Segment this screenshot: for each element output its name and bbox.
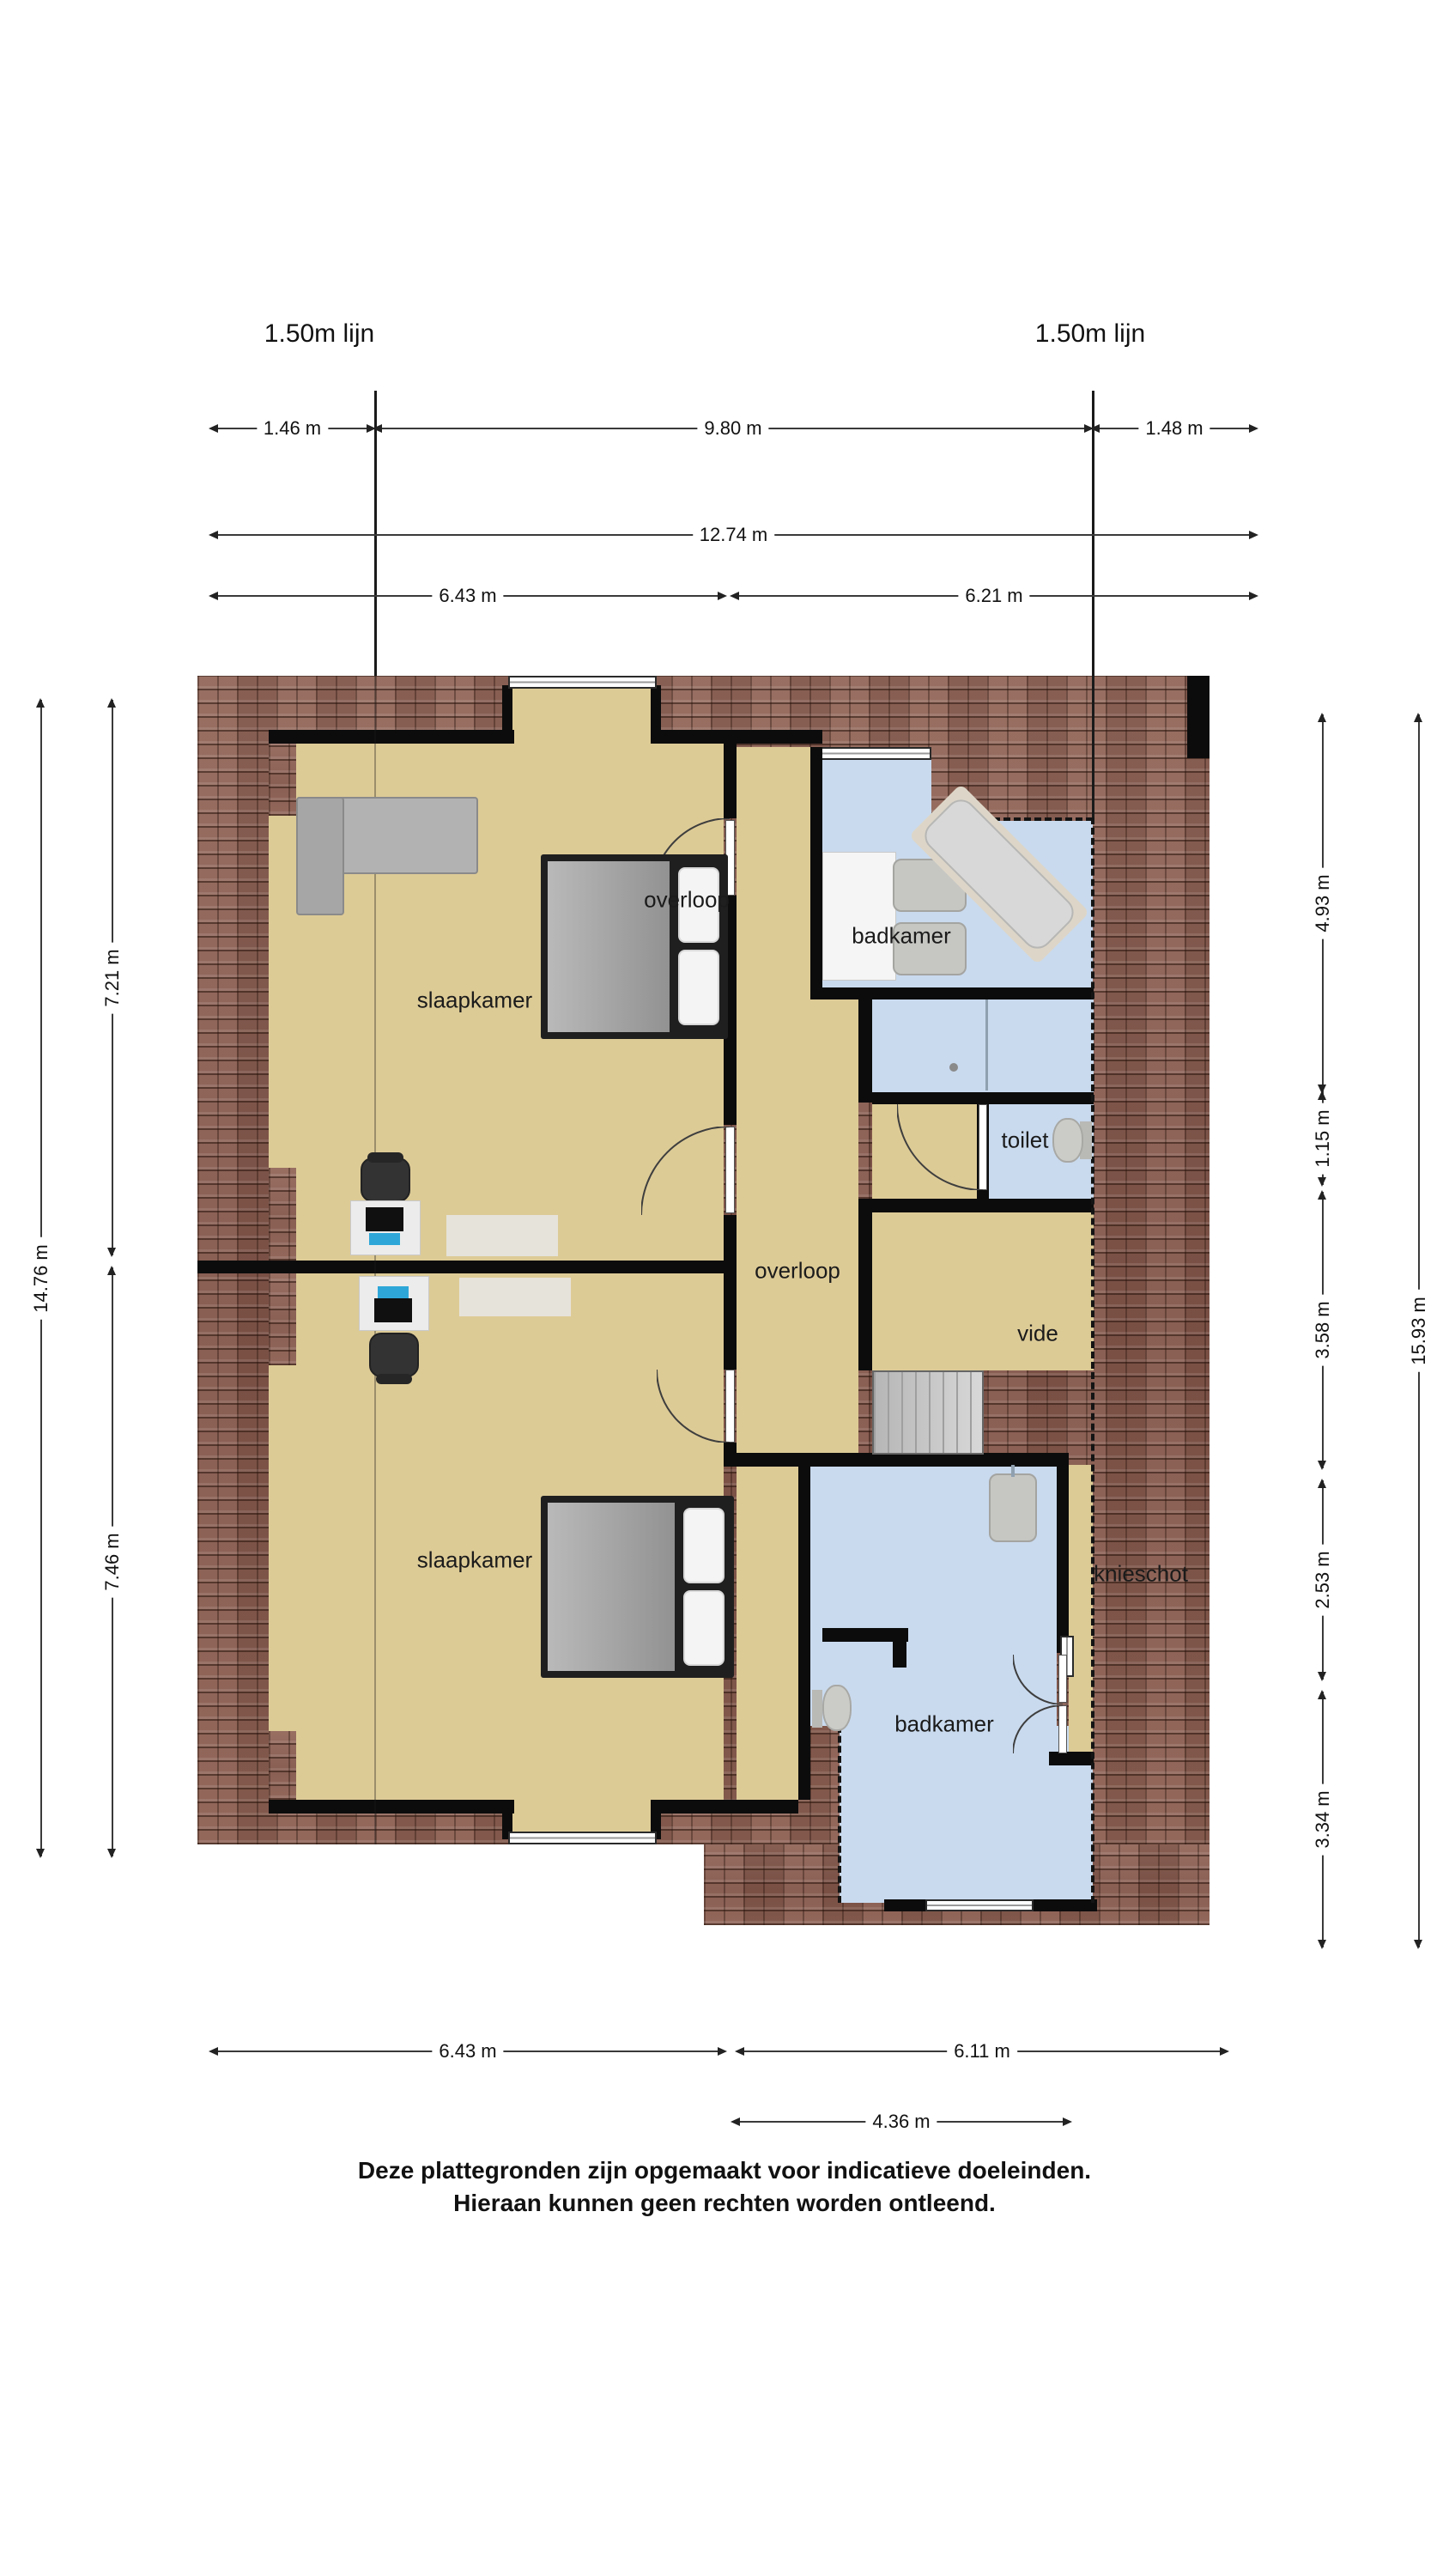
dim-top-5: 6.43 m [210, 595, 725, 597]
room-label-badkamer-bottom: badkamer [894, 1711, 994, 1738]
roof-notch [269, 1168, 296, 1261]
wall [724, 1215, 737, 1370]
door-arc [1013, 1705, 1063, 1753]
room-label-slaapkamer-bottom: slaapkamer [417, 1547, 532, 1574]
dim-right-6: 15.93 m [1418, 714, 1420, 1947]
computer-base [378, 1286, 409, 1298]
bathroom-counter [822, 852, 896, 981]
wall [858, 998, 872, 1103]
shower-drain-icon [949, 1063, 958, 1072]
toilet-fixture [1052, 1118, 1083, 1163]
window [817, 747, 931, 760]
dim-bottom-3: 4.36 m [732, 2121, 1070, 2123]
disclaimer-line-1: Deze plattegronden zijn opgemaakt voor i… [0, 2157, 1449, 2184]
wall [810, 747, 822, 998]
knieschot-strip-floor [1069, 1465, 1093, 1752]
window [508, 1832, 657, 1844]
dim-top-6: 6.21 m [731, 595, 1257, 597]
dim-top-3: 1.48 m [1092, 428, 1257, 429]
wall [1049, 1752, 1094, 1765]
wall [1187, 676, 1210, 758]
room-slaapkamer-bottom-floor-east [737, 1465, 798, 1800]
dim-right-4: 2.53 m [1322, 1480, 1324, 1680]
knee-wall-dashed [1091, 817, 1094, 1903]
wall [269, 1800, 514, 1814]
room-vide-floor [872, 1211, 1094, 1370]
computer-base [369, 1233, 400, 1245]
line-150-left-label: 1.50m lijn [264, 319, 374, 349]
wall [269, 730, 514, 744]
dim-top-2: 9.80 m [374, 428, 1092, 429]
door-arc [897, 1104, 983, 1190]
computer-monitor [374, 1298, 412, 1322]
dormer-bottom-floor [512, 1795, 651, 1832]
window [925, 1899, 1034, 1911]
dim-left-2: 14.76 m [40, 700, 42, 1856]
room-label-badkamer-top: badkamer [852, 923, 951, 950]
window [508, 676, 657, 689]
office-chair-back [376, 1374, 412, 1384]
office-chair-back [367, 1152, 403, 1163]
bed-pillow [683, 1590, 724, 1666]
office-chair [361, 1157, 410, 1202]
floorplan-page: slaapkamer overloop badkamer toilet over… [0, 0, 1449, 2576]
wall [872, 1199, 1094, 1212]
dim-bottom-1: 6.43 m [210, 2050, 725, 2052]
line-150-right-label: 1.50m lijn [1035, 319, 1145, 349]
dim-bottom-2: 6.11 m [737, 2050, 1228, 2052]
shower-divider [985, 999, 988, 1091]
wall [1057, 1465, 1069, 1653]
room-label-vide: vide [1017, 1321, 1058, 1347]
door-arc [1013, 1655, 1063, 1704]
wall [651, 730, 822, 744]
room-label-overloop: overloop [755, 1258, 840, 1285]
room-label-slaapkamer-top: slaapkamer [417, 987, 532, 1014]
room-label-knieschot: knieschot [1094, 1561, 1188, 1588]
knee-wall-dashed [838, 1726, 841, 1903]
sink-tap-icon [1011, 1465, 1015, 1477]
wall [724, 1453, 1069, 1467]
dim-right-3: 3.58 m [1322, 1192, 1324, 1468]
computer-monitor [366, 1207, 403, 1231]
dim-top-4: 12.74 m [210, 534, 1257, 536]
office-chair [369, 1333, 419, 1377]
overloop-top-floor [737, 747, 810, 998]
bed-pillow [683, 1508, 724, 1583]
wall [858, 1199, 872, 1370]
shower-floor [872, 998, 1094, 1092]
toilet-fixture [822, 1685, 852, 1731]
room-label-overloop-top: overloop [644, 887, 730, 914]
sofa-chaise [296, 797, 344, 915]
toilet-fixture-tank [812, 1690, 822, 1728]
dim-right-5: 3.34 m [1322, 1692, 1324, 1947]
door-arc [641, 1127, 730, 1215]
rug [459, 1278, 571, 1316]
dim-right-2: 1.15 m [1322, 1092, 1324, 1185]
roof-notch [269, 1273, 296, 1365]
room-label-toilet: toilet [1002, 1127, 1049, 1154]
line-150-right [1092, 391, 1094, 817]
wall [724, 737, 737, 818]
dim-top-1: 1.46 m [210, 428, 374, 429]
wall [651, 685, 661, 732]
sink [989, 1473, 1037, 1542]
line-150-left [374, 391, 377, 676]
rug [446, 1215, 558, 1256]
disclaimer-line-2: Hieraan kunnen geen rechten worden ontle… [0, 2190, 1449, 2217]
wall [798, 1453, 810, 1800]
bed-pillow [678, 950, 719, 1025]
dim-right-1: 4.93 m [1322, 714, 1324, 1092]
dim-left-3: 7.46 m [112, 1267, 113, 1856]
wall [651, 1800, 798, 1814]
stairs [872, 1370, 984, 1455]
roof-notch [269, 744, 296, 816]
door-arc [657, 1370, 730, 1443]
wall-party [197, 1261, 724, 1273]
dormer-top-floor [512, 687, 651, 747]
wall [893, 1628, 906, 1668]
dim-left-1: 7.21 m [112, 700, 113, 1255]
overloop-floor [737, 998, 858, 1453]
wall [810, 987, 1094, 999]
roof-notch [269, 1731, 296, 1800]
wall [502, 685, 512, 732]
bed-mattress [548, 1503, 675, 1671]
